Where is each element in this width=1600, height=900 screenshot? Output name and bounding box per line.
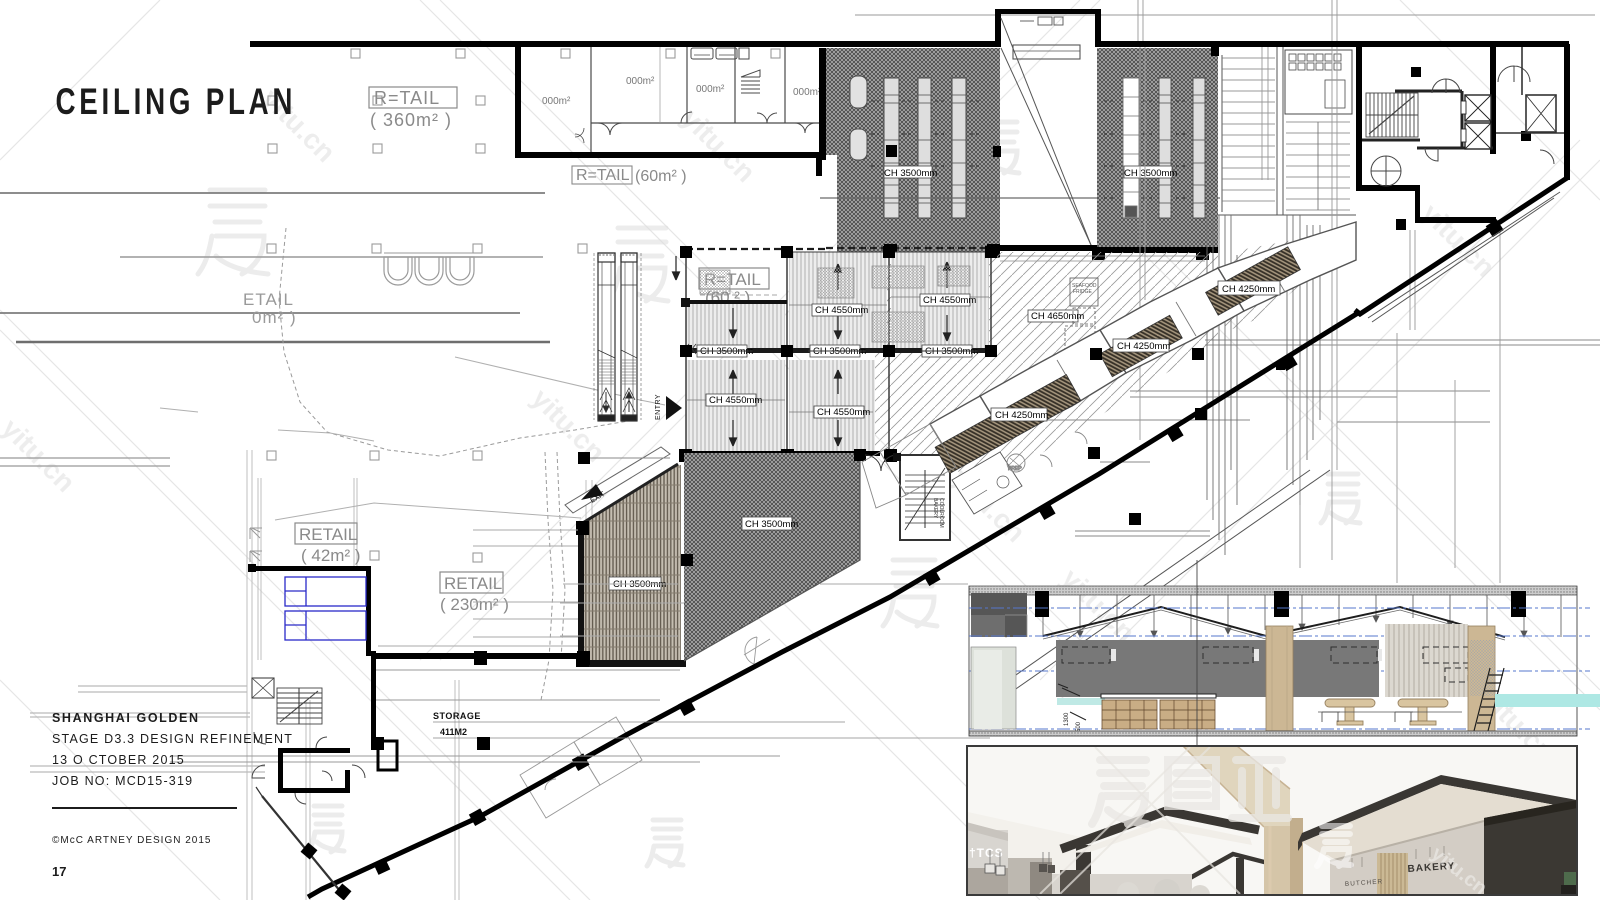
svg-text:COOLROOM: COOLROOM — [938, 498, 944, 528]
svg-text:CH 3500mm: CH 3500mm — [884, 168, 937, 179]
svg-text:000m²: 000m² — [542, 96, 571, 107]
svg-text:CH 3500mm: CH 3500mm — [613, 579, 666, 590]
svg-text:R=TAIL: R=TAIL — [374, 88, 440, 108]
svg-text:1300: 1300 — [1064, 712, 1070, 726]
svg-text:000m²: 000m² — [626, 76, 655, 87]
svg-text:©McC ARTNEY DESIGN 2015: ©McC ARTNEY DESIGN 2015 — [52, 835, 212, 846]
svg-text:R=TAIL: R=TAIL — [576, 167, 630, 184]
svg-text:SHANGHAI GOLDEN: SHANGHAI GOLDEN — [52, 711, 200, 725]
svg-text:CH 4650mm: CH 4650mm — [1031, 311, 1084, 322]
svg-text:ENTRY: ENTRY — [655, 394, 662, 420]
svg-text:BAKERY: BAKERY — [932, 498, 938, 519]
svg-text:CH 4550mm: CH 4550mm — [815, 305, 868, 316]
svg-text:RETAIL: RETAIL — [299, 525, 357, 544]
svg-text:PREP: PREP — [1008, 466, 1022, 472]
svg-text:RETAIL: RETAIL — [444, 574, 502, 593]
svg-text:†TCS: †TCS — [969, 846, 1004, 860]
svg-text:000m²: 000m² — [793, 87, 822, 98]
svg-text:13 O CTOBER 2015: 13 O CTOBER 2015 — [52, 753, 185, 767]
svg-text:CH 3500mm: CH 3500mm — [813, 346, 866, 357]
svg-text:CH 4550mm: CH 4550mm — [923, 295, 976, 306]
svg-text:STORAGE: STORAGE — [433, 711, 481, 721]
svg-text:CH 3500mm: CH 3500mm — [1124, 168, 1177, 179]
svg-text:CH 4250mm: CH 4250mm — [995, 410, 1048, 421]
svg-text:JOB NO: MCD15-319: JOB NO: MCD15-319 — [52, 774, 193, 788]
svg-text:FRIDGE: FRIDGE — [1073, 289, 1093, 295]
svg-text:ETAIL: ETAIL — [243, 290, 294, 309]
svg-text:( 360m² ): ( 360m² ) — [370, 110, 452, 130]
svg-text:500: 500 — [1076, 721, 1082, 732]
svg-text:CH 4550mm: CH 4550mm — [709, 395, 762, 406]
svg-text:17: 17 — [52, 864, 66, 879]
svg-text:CH 4250mm: CH 4250mm — [1222, 284, 1275, 295]
svg-text:000m²: 000m² — [696, 84, 725, 95]
svg-text:CH 4550mm: CH 4550mm — [817, 407, 870, 418]
svg-text:0m² ): 0m² ) — [252, 308, 297, 327]
svg-text:411M2: 411M2 — [440, 727, 467, 737]
svg-text:CH 3500mm: CH 3500mm — [745, 519, 798, 530]
svg-text:STAGE D3.3 DESIGN REFINEMENT: STAGE D3.3 DESIGN REFINEMENT — [52, 732, 293, 746]
svg-text:( 230m² ): ( 230m² ) — [440, 595, 509, 614]
svg-text:(60m² ): (60m² ) — [635, 168, 687, 185]
svg-text:( 42m² ): ( 42m² ) — [301, 546, 361, 565]
svg-text:CEILING PLAN: CEILING PLAN — [56, 80, 297, 122]
svg-text:CH 3500mm: CH 3500mm — [925, 346, 978, 357]
svg-text:CH 4250mm: CH 4250mm — [1117, 341, 1170, 352]
svg-text:CH 3500mm: CH 3500mm — [700, 346, 753, 357]
